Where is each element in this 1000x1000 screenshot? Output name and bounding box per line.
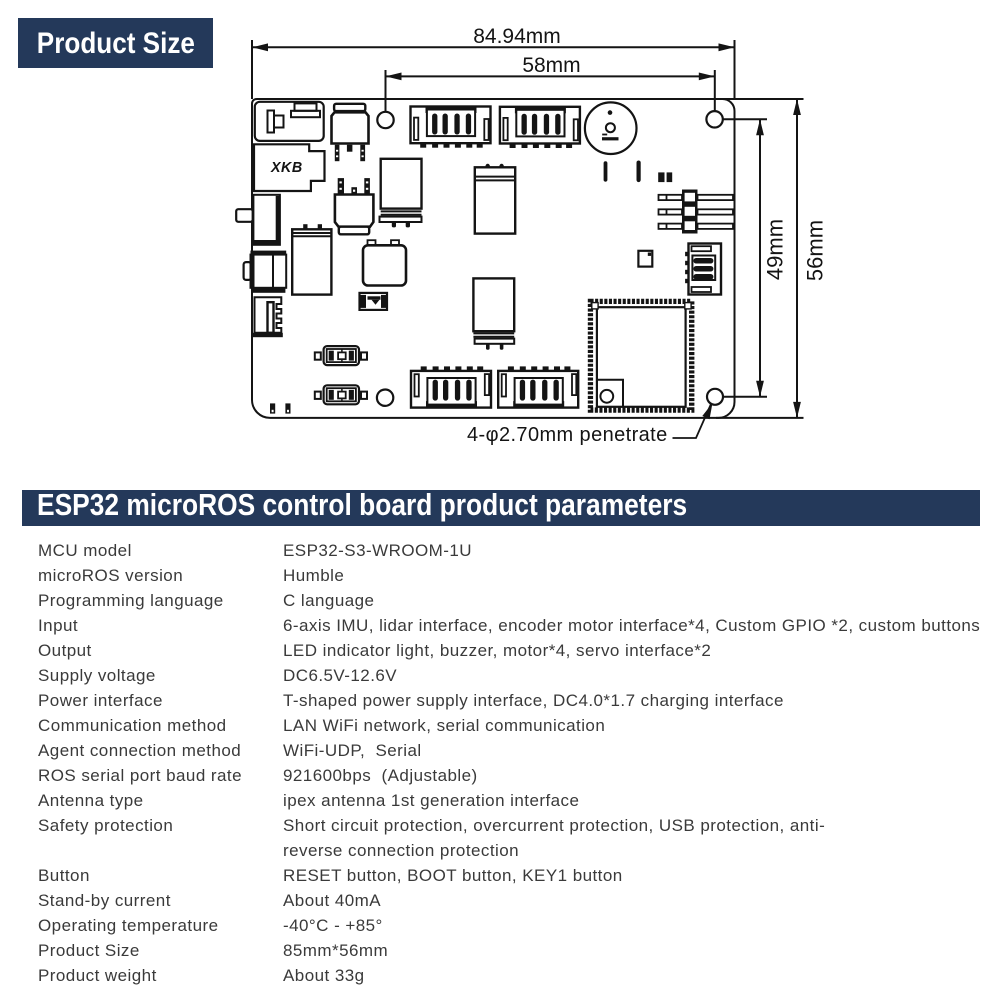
svg-text:4-φ2.70mm penetrate: 4-φ2.70mm penetrate [467, 424, 668, 446]
svg-text:84.94mm: 84.94mm [473, 25, 561, 48]
svg-text:56mm: 56mm [803, 220, 828, 281]
svg-text:XKB: XKB [270, 160, 303, 176]
svg-text:49mm: 49mm [763, 219, 788, 280]
svg-text:58mm: 58mm [522, 54, 580, 77]
